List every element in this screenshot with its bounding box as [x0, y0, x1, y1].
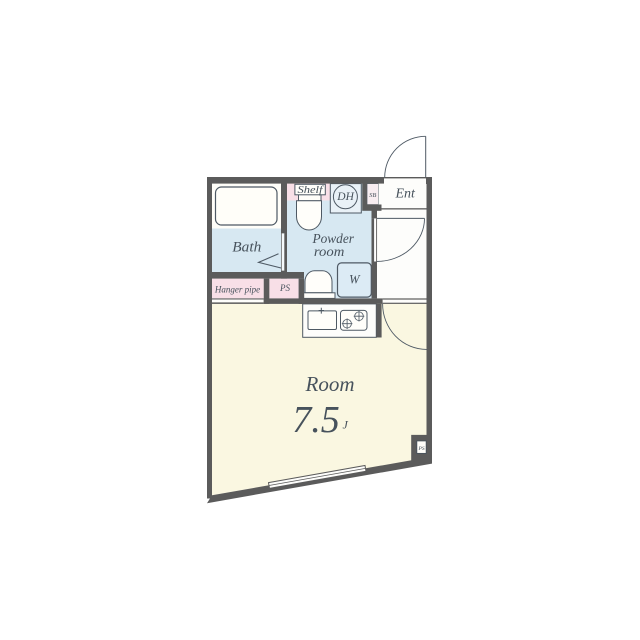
svg-text:J: J [343, 417, 349, 431]
svg-text:W: W [349, 273, 361, 287]
svg-text:Ent: Ent [394, 186, 416, 201]
svg-text:Room: Room [305, 372, 355, 396]
svg-text:room: room [314, 244, 345, 259]
svg-text:DH: DH [336, 191, 354, 203]
svg-text:Hanger pipe: Hanger pipe [214, 284, 260, 294]
svg-text:Shelf: Shelf [298, 185, 325, 196]
svg-text:PS: PS [418, 446, 425, 452]
svg-text:Bath: Bath [232, 240, 261, 256]
svg-text:PS: PS [279, 283, 290, 293]
svg-text:SB: SB [369, 192, 376, 199]
svg-text:7.5: 7.5 [292, 399, 340, 441]
